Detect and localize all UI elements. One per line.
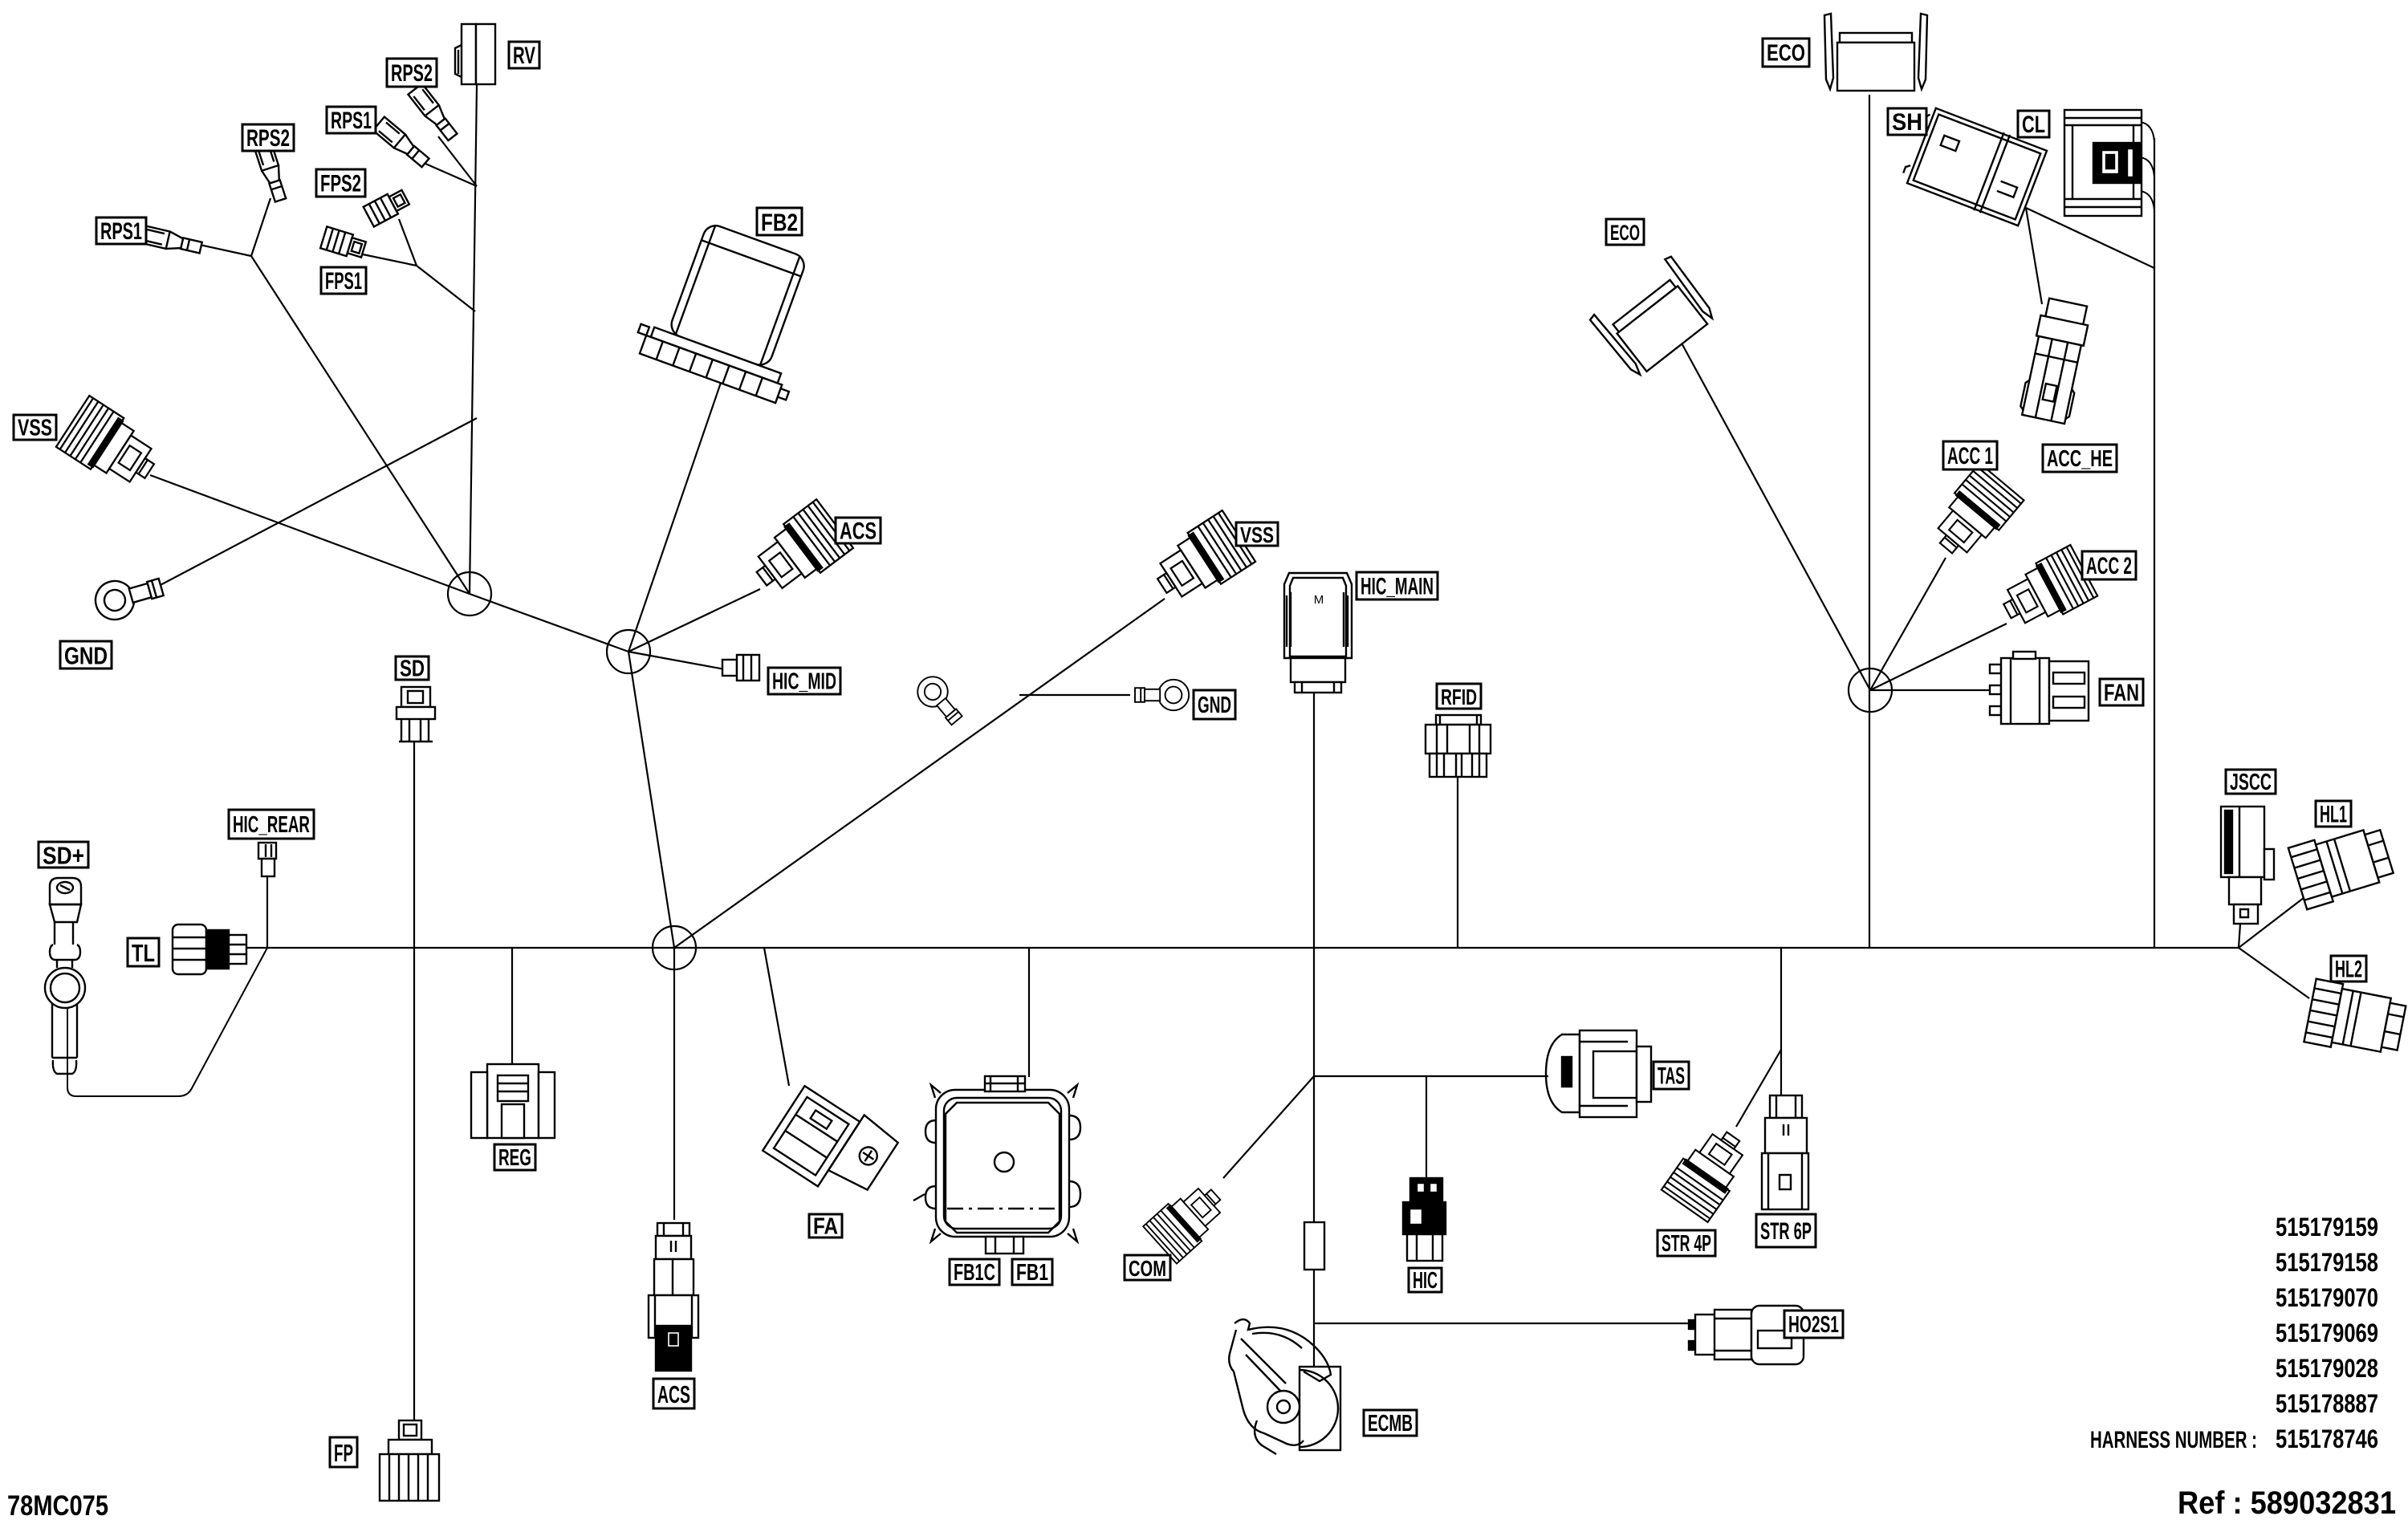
svg-text:RPS2: RPS2 bbox=[391, 60, 433, 87]
svg-text:HL2: HL2 bbox=[2335, 957, 2362, 983]
svg-text:GND: GND bbox=[1198, 693, 1231, 718]
svg-text:HO2S1: HO2S1 bbox=[1788, 1312, 1839, 1338]
svg-text:JSCC: JSCC bbox=[2230, 770, 2272, 795]
svg-text:515179070: 515179070 bbox=[2276, 1283, 2378, 1312]
svg-text:RPS1: RPS1 bbox=[100, 218, 142, 245]
svg-text:HIC_MID: HIC_MID bbox=[772, 669, 836, 695]
svg-text:STR 6P: STR 6P bbox=[1760, 1218, 1812, 1245]
svg-text:ACS: ACS bbox=[657, 1380, 690, 1408]
svg-text:REG: REG bbox=[498, 1145, 531, 1171]
svg-text:GND: GND bbox=[64, 642, 108, 670]
svg-text:TAS: TAS bbox=[1658, 1063, 1685, 1090]
svg-text:515179028: 515179028 bbox=[2276, 1354, 2378, 1383]
svg-text:FAN: FAN bbox=[2104, 680, 2139, 706]
svg-text:HARNESS NUMBER :: HARNESS NUMBER : bbox=[2090, 1427, 2257, 1453]
svg-text:M: M bbox=[1314, 593, 1324, 607]
svg-text:HIC_MAIN: HIC_MAIN bbox=[1361, 574, 1434, 600]
svg-text:ECO: ECO bbox=[1767, 41, 1805, 67]
svg-text:515178746: 515178746 bbox=[2276, 1424, 2378, 1453]
svg-text:HL1: HL1 bbox=[2320, 802, 2347, 828]
svg-text:TL: TL bbox=[132, 939, 155, 967]
svg-text:RFID: RFID bbox=[1441, 685, 1477, 709]
svg-text:ACS: ACS bbox=[840, 518, 877, 545]
svg-text:RPS2: RPS2 bbox=[246, 125, 290, 152]
svg-text:ACC 1: ACC 1 bbox=[1947, 443, 1993, 469]
svg-text:VSS: VSS bbox=[18, 416, 52, 441]
svg-text:FB1C: FB1C bbox=[954, 1260, 995, 1286]
svg-text:Ref : 589032831: Ref : 589032831 bbox=[2178, 1485, 2396, 1521]
svg-text:HIC: HIC bbox=[1413, 1268, 1438, 1294]
svg-text:515179069: 515179069 bbox=[2276, 1319, 2378, 1347]
svg-text:SD+: SD+ bbox=[43, 842, 84, 870]
svg-text:ACC_HE: ACC_HE bbox=[2047, 446, 2113, 472]
svg-text:78MC075: 78MC075 bbox=[7, 1490, 108, 1522]
svg-text:FB2: FB2 bbox=[761, 209, 798, 237]
svg-text:VSS: VSS bbox=[1240, 522, 1274, 547]
svg-text:ECO: ECO bbox=[1610, 221, 1640, 245]
svg-text:SH: SH bbox=[1892, 109, 1922, 136]
svg-text:STR 4P: STR 4P bbox=[1662, 1231, 1711, 1257]
svg-text:FB1: FB1 bbox=[1016, 1260, 1048, 1286]
svg-text:ECMB: ECMB bbox=[1368, 1411, 1413, 1437]
svg-text:RPS1: RPS1 bbox=[331, 108, 372, 134]
svg-text:FPS1: FPS1 bbox=[325, 268, 362, 295]
svg-text:515179158: 515179158 bbox=[2276, 1248, 2378, 1277]
svg-text:515179159: 515179159 bbox=[2276, 1213, 2378, 1241]
svg-text:515178887: 515178887 bbox=[2276, 1389, 2378, 1418]
svg-text:SD: SD bbox=[400, 656, 425, 682]
svg-text:HIC_REAR: HIC_REAR bbox=[233, 812, 310, 838]
svg-text:FPS2: FPS2 bbox=[320, 171, 361, 197]
svg-text:FA: FA bbox=[813, 1214, 838, 1240]
svg-text:ACC 2: ACC 2 bbox=[2086, 553, 2132, 579]
svg-text:CL: CL bbox=[2022, 112, 2045, 138]
svg-text:RV: RV bbox=[513, 43, 535, 69]
svg-text:COM: COM bbox=[1129, 1256, 1166, 1281]
svg-text:FP: FP bbox=[334, 1439, 353, 1467]
